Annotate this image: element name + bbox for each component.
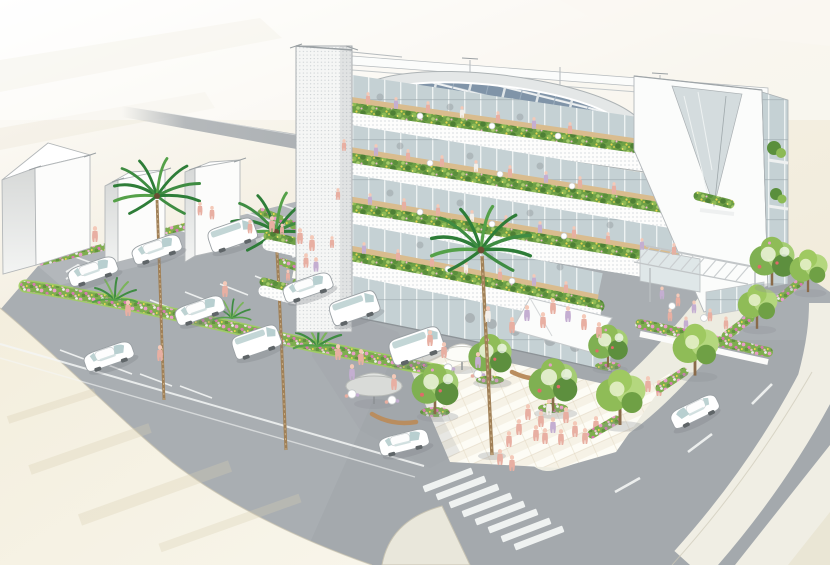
tower-shading <box>340 46 352 332</box>
architectural-rendering <box>0 0 830 565</box>
